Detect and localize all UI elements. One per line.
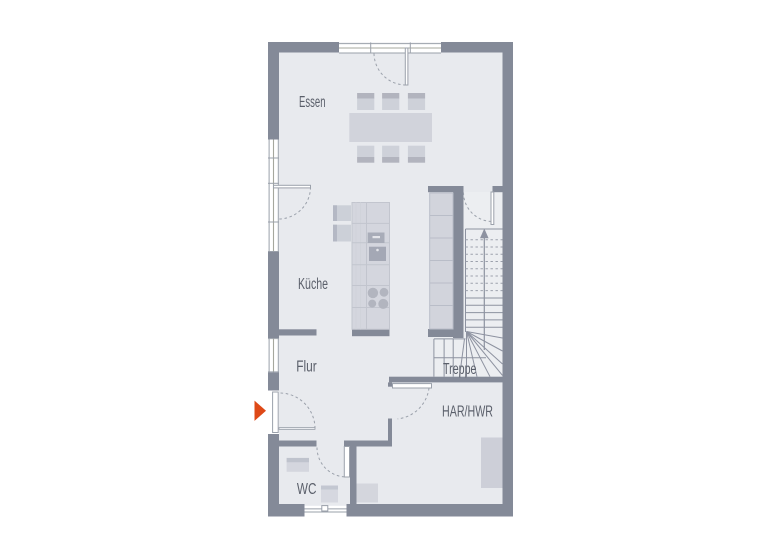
- svg-text:WC: WC: [297, 481, 317, 498]
- svg-text:Flur: Flur: [296, 359, 317, 376]
- svg-text:Essen: Essen: [299, 94, 326, 111]
- svg-text:HAR/HWR: HAR/HWR: [442, 403, 493, 420]
- svg-text:Treppe: Treppe: [443, 361, 477, 378]
- svg-text:Küche: Küche: [298, 276, 328, 293]
